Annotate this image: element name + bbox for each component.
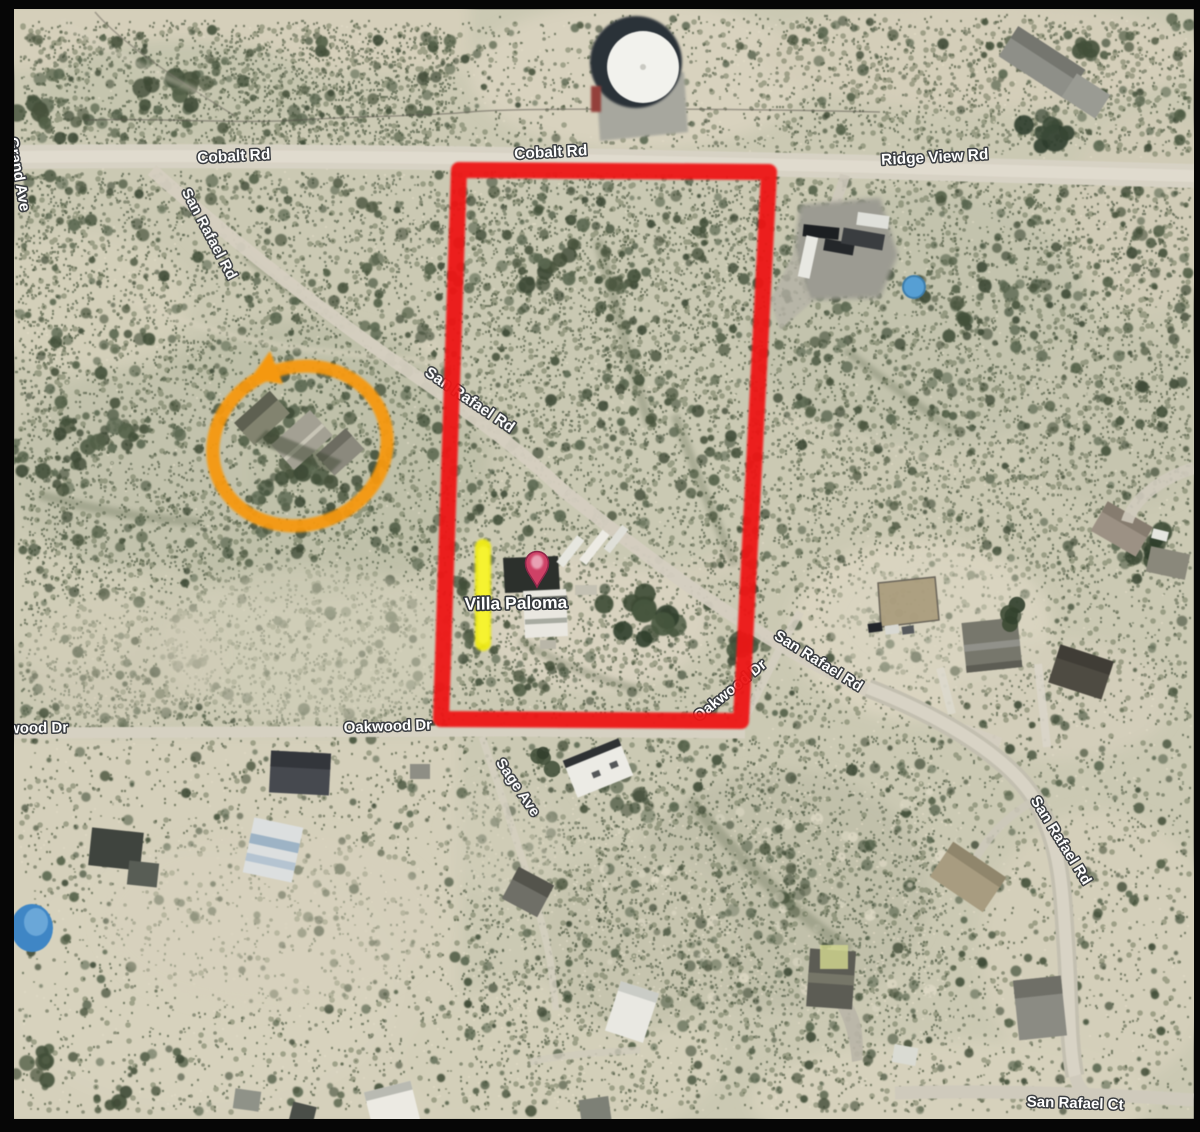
svg-text:Villa Paloma: Villa Paloma [464,592,567,614]
svg-text:San Rafael Ct: San Rafael Ct [1027,1093,1124,1113]
svg-text:Oakwood Dr: Oakwood Dr [343,716,432,736]
